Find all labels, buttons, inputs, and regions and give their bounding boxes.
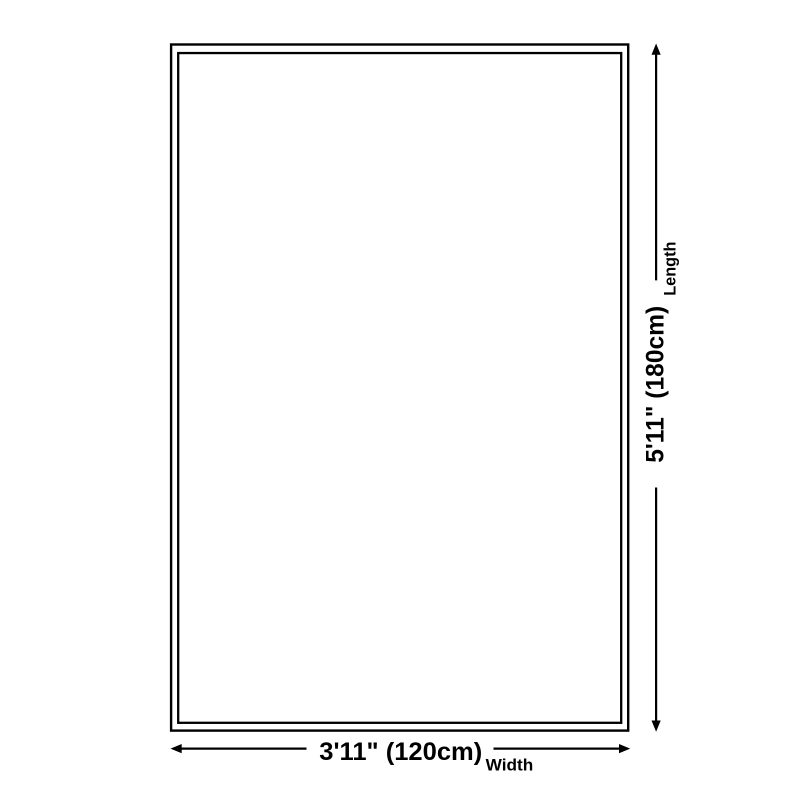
- svg-text:Width: Width: [486, 757, 534, 775]
- svg-text:5'11" (180cm): 5'11" (180cm): [641, 306, 669, 463]
- svg-text:Length: Length: [661, 242, 679, 296]
- svg-text:3'11" (120cm): 3'11" (120cm): [319, 738, 482, 766]
